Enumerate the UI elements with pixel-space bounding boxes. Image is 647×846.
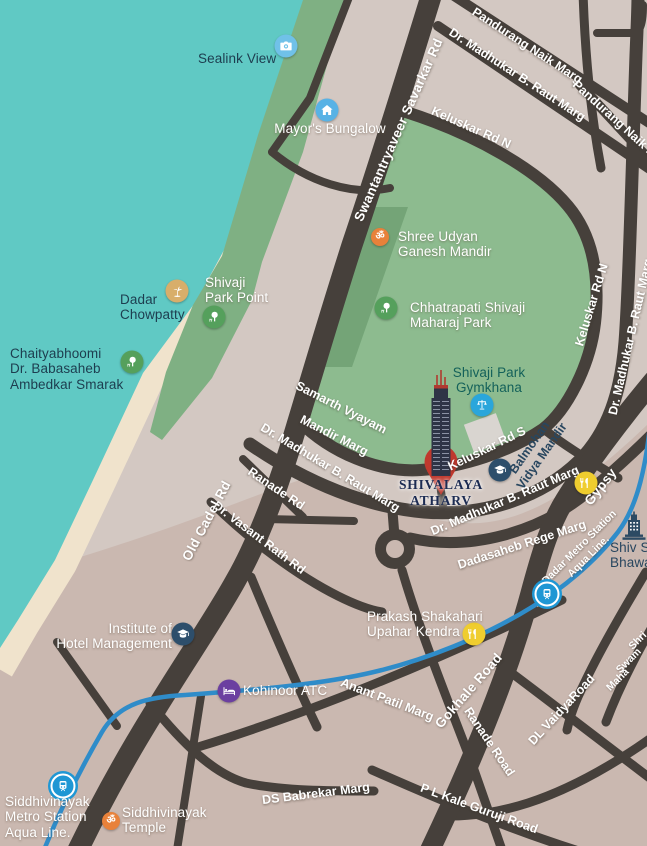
roundabout-center bbox=[386, 540, 404, 558]
tree-icon bbox=[375, 297, 398, 320]
poi-label-sealink-view: Sealink View bbox=[198, 51, 276, 66]
scales-icon bbox=[471, 394, 494, 417]
poi-label-mayors-bungalow: Mayor's Bungalow bbox=[274, 121, 385, 136]
poi-label-siddhivinayak-temple: Siddhivinayak Temple bbox=[122, 805, 207, 836]
poi-label-dadar-chowpatty: Dadar Chowpatty bbox=[120, 292, 185, 323]
poi-label-siddhivinayak-metro: Siddhivinayak Metro Station Aqua Line. bbox=[5, 794, 90, 840]
landmark-label-shivalaya-atharv: SHIVALAYA ATHARV bbox=[399, 477, 483, 509]
house-icon bbox=[316, 99, 339, 122]
poi-label-shiv-sena-bhawan: Shiv Sena Bhawan bbox=[610, 540, 647, 571]
poi-label-gymkhana: Shivaji Park Gymkhana bbox=[453, 365, 525, 396]
metro-train-icon bbox=[535, 582, 560, 607]
om-icon: ॐ bbox=[102, 812, 120, 830]
tree-icon bbox=[203, 306, 226, 329]
building-icon bbox=[621, 511, 647, 543]
poi-label-kohinoor-atc: Kohinoor ATC bbox=[243, 683, 327, 698]
camera-icon bbox=[275, 35, 298, 58]
om-icon: ॐ bbox=[371, 228, 389, 246]
poi-label-shivaji-park-point: Shivaji Park Point bbox=[205, 275, 268, 306]
graduation-cap-icon bbox=[172, 623, 195, 646]
bed-icon bbox=[218, 680, 241, 703]
poi-label-institute: Institute of Hotel Management bbox=[52, 621, 172, 652]
map-canvas: Swantantryaveer Savarkar Rd Pandurang Na… bbox=[0, 0, 647, 846]
poi-label-prakash: Prakash Shakahari Upahar Kendra bbox=[367, 609, 483, 640]
poi-label-shree-udyan: Shree Udyan Ganesh Mandir bbox=[398, 229, 492, 260]
poi-label-shivaji-maharaj-park: Chhatrapati Shivaji Maharaj Park bbox=[410, 300, 525, 331]
poi-label-chaityabhoomi: Chaityabhoomi Dr. Babasaheb Ambedkar Sma… bbox=[10, 346, 123, 392]
tree-icon bbox=[121, 351, 144, 374]
